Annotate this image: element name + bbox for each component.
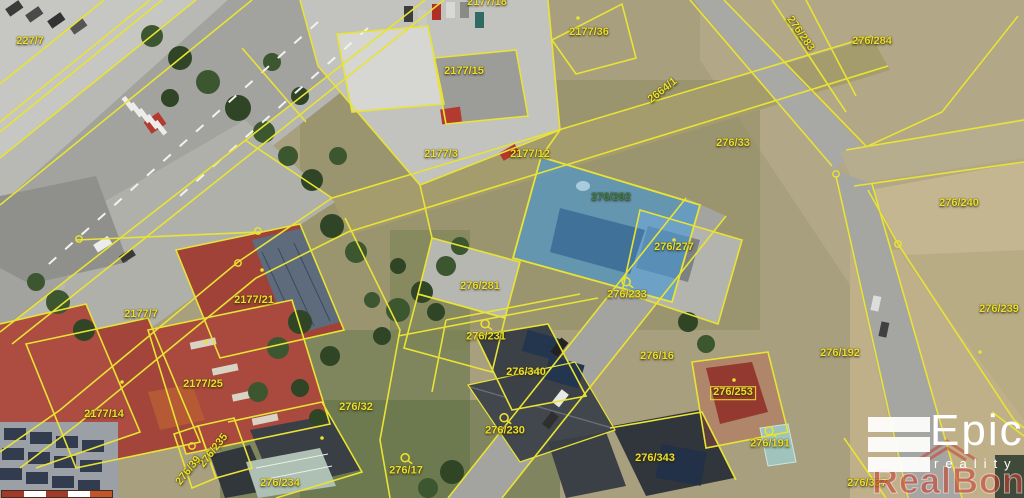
agency-logo: Epic reality xyxy=(866,412,1024,482)
parcel-number: 276/281 xyxy=(460,281,500,293)
parcel-number: 276/231 xyxy=(466,332,506,344)
parcel-number: 276/343 xyxy=(635,453,675,465)
parcel-number: 2664/1 xyxy=(646,76,680,106)
parcel-label: 276/32 xyxy=(339,402,373,414)
parcel-number: 276/340 xyxy=(506,367,546,379)
parcel-label: 2664/1 xyxy=(646,76,680,106)
parcel-number: 276/17 xyxy=(389,466,423,478)
parcel-number: 2177/25 xyxy=(183,379,223,391)
parcel-number: 2177/21 xyxy=(234,295,274,307)
well-icon xyxy=(498,413,512,425)
parcel-label: 276/234 xyxy=(260,478,300,490)
parcel-number: 276/284 xyxy=(852,36,892,48)
parcel-label: 276/277 xyxy=(654,242,694,254)
parcel-label: 276/235 xyxy=(197,432,231,470)
parcel-number: 276/39 xyxy=(174,454,204,488)
parcel-label: 2177/3 xyxy=(424,149,458,161)
parcel-number: 2177/12 xyxy=(510,149,550,161)
parcel-label: 2177/14 xyxy=(84,409,124,421)
parcel-number: 276/234 xyxy=(260,478,300,490)
parcel-label: 276/233 xyxy=(607,277,647,302)
parcel-number: 276/16 xyxy=(640,351,674,363)
parcel-label: 2177/15 xyxy=(444,66,484,78)
parcel-number: 276/277 xyxy=(654,242,694,254)
scale-bar-segment xyxy=(2,491,24,497)
parcel-label: 276/191 xyxy=(750,426,790,451)
scale-bar xyxy=(2,491,112,497)
parcel-number: 276/191 xyxy=(750,439,790,451)
logo-title: Epic xyxy=(930,406,1024,456)
scale-bar-segment xyxy=(46,491,68,497)
scale-bar-segment xyxy=(90,491,112,497)
parcel-number: 2177/15 xyxy=(444,66,484,78)
parcel-label: 276/239 xyxy=(979,304,1019,316)
parcel-label: 2177/12 xyxy=(510,149,550,161)
parcel-label: 276/231 xyxy=(466,319,506,344)
well-icon xyxy=(763,426,777,438)
epic-logo-bars-icon xyxy=(868,417,930,472)
parcel-label: 2177/36 xyxy=(569,27,609,39)
parcel-number: 276/33 xyxy=(716,138,750,150)
parcel-number: 2177/14 xyxy=(84,409,124,421)
parcel-label: 276/281 xyxy=(460,281,500,293)
parcel-label: 276/240 xyxy=(939,198,979,210)
parcel-number: 227/7 xyxy=(16,36,44,48)
parcel-number: 2177/36 xyxy=(569,27,609,39)
parcel-label: 276/33 xyxy=(716,138,750,150)
parcel-label: 276/284 xyxy=(852,36,892,48)
parcel-number: 276/233 xyxy=(607,290,647,302)
parcel-label: 276/192 xyxy=(820,348,860,360)
well-icon xyxy=(620,277,634,289)
parcel-label: 276/230 xyxy=(485,413,525,438)
parcel-label: 276/16 xyxy=(640,351,674,363)
parcel-label: 276/39 xyxy=(174,454,204,488)
parcel-number: 2177/7 xyxy=(124,309,158,321)
parcel-number: 276/235 xyxy=(197,432,231,470)
parcel-label: 276/292 xyxy=(591,192,631,204)
scale-bar-segment xyxy=(68,491,90,497)
parcel-number: 276/239 xyxy=(979,304,1019,316)
parcel-number: 276/283 xyxy=(784,14,816,53)
parcel-number: 276/253 xyxy=(710,386,756,400)
well-icon xyxy=(479,319,493,331)
parcel-number: 276/230 xyxy=(485,426,525,438)
parcel-number: 276/192 xyxy=(820,348,860,360)
parcel-number: 276/240 xyxy=(939,198,979,210)
parcel-number: 2177/3 xyxy=(424,149,458,161)
parcel-label: 276/253 xyxy=(710,386,756,400)
parcel-label: 276/17 xyxy=(389,453,423,478)
parcel-label: 2177/21 xyxy=(234,295,274,307)
parcel-label: 227/7 xyxy=(16,36,44,48)
parcel-number: 276/292 xyxy=(591,192,631,204)
parcel-number: 276/32 xyxy=(339,402,373,414)
well-icon xyxy=(399,453,413,465)
logo-subtitle: reality xyxy=(934,456,1018,471)
parcel-number: 2177/18 xyxy=(467,0,507,9)
map-canvas[interactable]: 227/72177/182177/362177/152177/32177/122… xyxy=(0,0,1024,498)
parcel-label: 2177/18 xyxy=(467,0,507,9)
parcel-label: 2177/25 xyxy=(183,379,223,391)
parcel-label: 276/283 xyxy=(784,14,816,53)
parcel-label: 2177/7 xyxy=(124,309,158,321)
parcel-label: 276/340 xyxy=(506,367,546,379)
parcel-label: 276/343 xyxy=(635,453,675,465)
scale-bar-segment xyxy=(24,491,46,497)
